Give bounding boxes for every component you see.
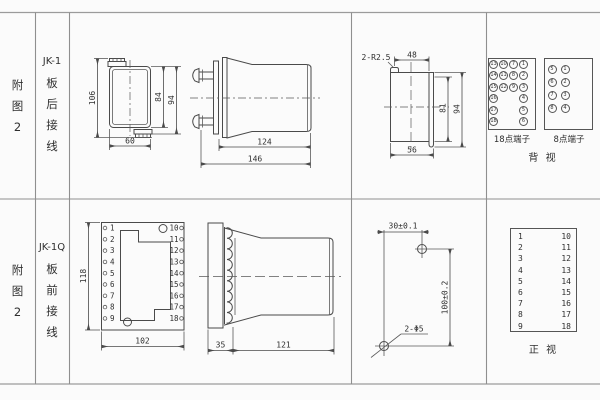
terminal-8-cell: 3 [561, 91, 570, 100]
svg-text:10: 10 [169, 224, 179, 233]
table-cell: 12 [550, 253, 571, 264]
table-cell: 5 [518, 276, 523, 287]
dim-35-label: 35 [216, 341, 226, 350]
terminal-18-cell: 3 [519, 83, 528, 92]
svg-text:11: 11 [169, 235, 178, 244]
terminal-18-cell: 6 [519, 117, 528, 126]
table-cell: 14 [550, 276, 571, 287]
table-cell: 4 [518, 265, 523, 276]
wiring-char: 前 [46, 280, 58, 301]
wiring-char: 线 [46, 322, 58, 343]
table-cell: 7 [518, 298, 523, 309]
dim-106-label: 106 [88, 91, 97, 106]
table-cell: 6 [518, 287, 523, 298]
figure-char: 2 [14, 302, 21, 323]
terminal-18-cell: 8 [509, 71, 518, 80]
terminal-18-cell: 12 [499, 83, 508, 92]
terminal-18-cell: 16 [489, 94, 498, 103]
front-left-terminal-pips [103, 226, 107, 320]
svg-text:16: 16 [169, 291, 179, 300]
terminal-18-cell: 10 [499, 60, 508, 69]
figure-char: 图 [12, 96, 24, 117]
svg-text:14: 14 [169, 269, 179, 278]
table-cell: 13 [550, 265, 571, 276]
cutout-radius-note: 2-R2.5 [362, 53, 391, 62]
table-cell: 1 [518, 231, 523, 242]
rear-case-side-view: 124 146 [190, 58, 320, 169]
terminal-block-8-label: 8点端子 [541, 133, 597, 145]
dim-102-label: 102 [135, 337, 150, 346]
figure-label-top: 附 图 2 [0, 13, 35, 199]
front-view-caption: 正 视 [505, 341, 582, 356]
terminal-8-cell: 6 [548, 78, 557, 87]
dim-84-label: 84 [154, 92, 163, 102]
dim-48-label: 48 [407, 51, 417, 60]
dim-121-label: 121 [276, 341, 291, 350]
front-left-terminal-numbers: 1 2 3 4 5 6 7 8 9 [110, 224, 115, 323]
terminal-18-cell: 4 [519, 94, 528, 103]
figure-label-bottom: 附 图 2 [0, 200, 35, 383]
figure-char: 附 [12, 75, 24, 96]
rear-view-caption: 背 视 [486, 149, 600, 164]
dim-60-label: 60 [125, 137, 135, 146]
terminal-block-18-label: 18点端子 [484, 133, 540, 145]
drill-template-view: 30±0.1 100±0.2 2-Φ5 [371, 222, 454, 358]
dim-100-label: 100±0.2 [441, 280, 450, 314]
wiring-char: 线 [46, 136, 58, 157]
svg-text:3: 3 [110, 246, 115, 255]
svg-text:8: 8 [110, 303, 115, 312]
dim-94b-label: 94 [453, 104, 462, 114]
terminal-8-cell: 4 [561, 104, 570, 113]
table-cell: 3 [518, 253, 523, 264]
table-cell: 10 [550, 231, 571, 242]
terminal-18-cell: 1 [519, 60, 528, 69]
terminal-18-cell: 14 [489, 71, 498, 80]
terminal-18-cell: 5 [519, 106, 528, 115]
terminal-18-cell: 17 [489, 106, 498, 115]
wiring-char: 接 [46, 115, 58, 136]
table-cell: 11 [550, 242, 571, 253]
svg-text:7: 7 [110, 291, 115, 300]
model-label-bottom: JK-1Q 板 前 接 线 [35, 200, 69, 383]
svg-text:12: 12 [169, 246, 178, 255]
front-case-view: 1 2 3 4 5 6 7 8 9 [79, 223, 184, 351]
rear-case-front-view: 106 84 94 60 [88, 59, 181, 151]
wiring-char: 接 [46, 301, 58, 322]
front-right-terminal-pips [180, 226, 184, 320]
table-cell: 18 [550, 321, 571, 332]
table-cell: 9 [518, 321, 523, 332]
dim-81-label: 81 [439, 103, 448, 113]
model-name: JK-1 [43, 55, 61, 68]
dim-124-label: 124 [257, 138, 272, 147]
svg-text:4: 4 [110, 258, 115, 267]
wiring-char: 后 [46, 94, 58, 115]
svg-text:9: 9 [110, 314, 115, 323]
terminal-18-cell: 7 [509, 60, 518, 69]
hole-note: 2-Φ5 [404, 325, 423, 334]
figure-char: 附 [12, 260, 24, 281]
table-cell: 17 [550, 309, 571, 320]
table-cell: 8 [518, 309, 523, 320]
svg-text:6: 6 [110, 280, 115, 289]
svg-text:13: 13 [169, 258, 178, 267]
terminal-8-cell: 1 [561, 65, 570, 74]
terminal-8-cell: 2 [561, 78, 570, 87]
table-right-column: 10 11 12 13 14 15 16 17 18 [550, 231, 571, 332]
model-label-top: JK-1 板 后 接 线 [35, 13, 69, 199]
svg-text:5: 5 [110, 269, 115, 278]
terminal-18-cell: 9 [509, 83, 518, 92]
table-left-column: 1 2 3 4 5 6 7 8 9 [518, 231, 523, 332]
dim-56-label: 56 [407, 146, 417, 155]
dim-94-label: 94 [167, 95, 176, 105]
terminal-18-cell: 2 [519, 71, 528, 80]
wiring-char: 板 [46, 73, 58, 94]
figure-char: 2 [14, 117, 21, 138]
front-right-terminal-numbers: 10 11 12 13 14 15 16 17 18 [169, 224, 179, 323]
table-cell: 2 [518, 242, 523, 253]
terminal-8-cell: 7 [548, 91, 557, 100]
svg-text:18: 18 [169, 314, 179, 323]
terminal-18-cell: 13 [489, 60, 498, 69]
panel-cutout-view: 2-R2.5 48 81 94 56 [362, 51, 466, 159]
wiring-char: 板 [46, 259, 58, 280]
figure-char: 图 [12, 281, 24, 302]
svg-text:17: 17 [169, 303, 178, 312]
terminal-8-cell: 5 [548, 65, 557, 74]
terminal-18-cell: 15 [489, 83, 498, 92]
model-name: JK-1Q [39, 241, 65, 254]
terminal-18-cell: 11 [499, 71, 508, 80]
terminal-18-cell: 18 [489, 117, 498, 126]
table-cell: 15 [550, 287, 571, 298]
table-cell: 16 [550, 298, 571, 309]
svg-text:15: 15 [169, 280, 178, 289]
dim-30-label: 30±0.1 [389, 222, 418, 231]
svg-text:1: 1 [110, 224, 115, 233]
dim-146-label: 146 [248, 155, 263, 164]
dim-118-label: 118 [79, 269, 88, 284]
svg-text:2: 2 [110, 235, 115, 244]
relay-datasheet-page: 106 84 94 60 [0, 0, 600, 400]
terminal-8-cell: 8 [548, 104, 557, 113]
front-case-side-view: 35 121 [199, 223, 341, 355]
